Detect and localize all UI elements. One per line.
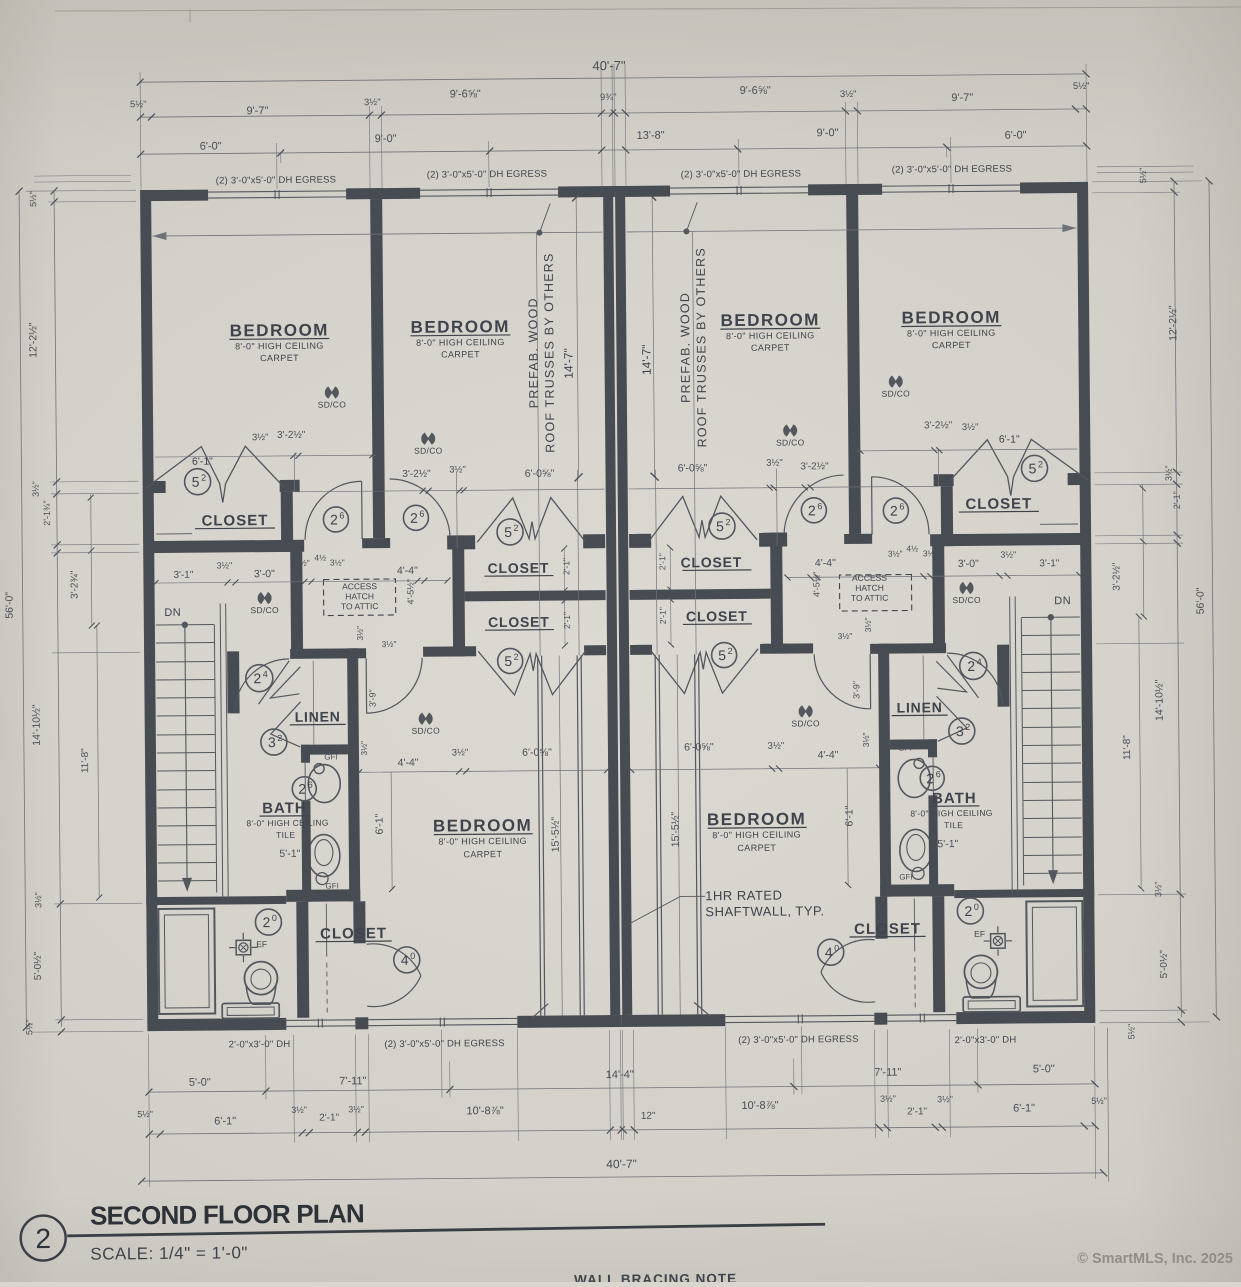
svg-text:BEDROOM: BEDROOM [901,308,1000,328]
svg-text:2: 2 [725,517,730,527]
svg-text:2'-1": 2'-1" [562,612,572,629]
svg-text:5: 5 [504,524,512,540]
svg-text:BATH: BATH [932,790,977,807]
svg-text:(2) 3'-0"x5'-0" DH EGRESS: (2) 3'-0"x5'-0" DH EGRESS [216,174,337,186]
svg-text:6'-1": 6'-1" [192,456,213,468]
svg-text:3½": 3½" [861,732,871,747]
svg-text:9'-6⅝": 9'-6⅝" [740,85,771,97]
svg-text:GFI: GFI [324,752,337,761]
svg-text:6'-0⅝": 6'-0⅝" [684,741,714,753]
svg-text:CLOSET: CLOSET [201,512,268,530]
svg-text:6: 6 [817,501,822,511]
svg-text:10'-8⅞": 10'-8⅞" [741,1100,778,1112]
svg-text:CLOSET: CLOSET [854,920,921,938]
svg-text:2: 2 [35,1223,51,1254]
svg-text:CARPET: CARPET [932,340,971,350]
svg-text:2: 2 [201,473,206,483]
svg-text:2'-1": 2'-1" [319,1112,339,1123]
svg-text:14'-4": 14'-4" [606,1069,634,1081]
svg-text:3½": 3½" [962,422,979,433]
svg-text:3½": 3½" [838,631,853,641]
svg-text:ROOF TRUSSES BY OTHERS: ROOF TRUSSES BY OTHERS [542,252,558,452]
svg-text:0: 0 [272,913,277,923]
svg-text:2: 2 [808,502,816,518]
svg-text:9¾": 9¾" [600,92,617,103]
svg-text:11'-8": 11'-8" [80,748,91,773]
svg-text:5'-1": 5'-1" [937,838,958,850]
svg-text:2: 2 [964,903,972,919]
svg-text:2'-0"x3'-0" DH: 2'-0"x3'-0" DH [229,1039,291,1051]
svg-text:2: 2 [330,511,338,527]
svg-text:4'-5½": 4'-5½" [811,572,821,598]
svg-text:TILE: TILE [944,820,963,830]
svg-text:TILE: TILE [276,830,295,840]
svg-text:15'-5½": 15'-5½" [669,811,681,847]
svg-text:6'-1": 6'-1" [1013,1102,1035,1114]
svg-text:2'-1": 2'-1" [657,553,667,570]
svg-text:© SmartMLS, Inc. 2025: © SmartMLS, Inc. 2025 [1077,1251,1233,1267]
svg-text:3½": 3½" [291,1105,307,1115]
svg-text:5'-0": 5'-0" [1033,1063,1055,1075]
svg-text:6'-0⅝": 6'-0⅝" [522,747,552,759]
svg-text:9'-7": 9'-7" [951,92,973,104]
svg-text:BEDROOM: BEDROOM [411,317,510,337]
svg-text:LINEN: LINEN [897,699,943,715]
svg-text:5½": 5½" [1126,1024,1136,1040]
svg-text:8'-0" HIGH CEILING: 8'-0" HIGH CEILING [416,337,505,348]
svg-text:14'-10½": 14'-10½" [31,704,43,746]
svg-text:SCALE: 1/4" = 1'-0": SCALE: 1/4" = 1'-0" [90,1243,248,1263]
svg-text:6'-0": 6'-0" [200,140,222,152]
svg-text:BEDROOM: BEDROOM [720,310,819,330]
svg-text:8'-0" HIGH CEILING: 8'-0" HIGH CEILING [235,341,324,352]
svg-text:TO ATTIC: TO ATTIC [341,601,379,611]
svg-text:5½": 5½" [130,99,147,110]
svg-text:8'-0" HIGH CEILING: 8'-0" HIGH CEILING [910,808,992,819]
svg-text:SD/CO: SD/CO [250,605,279,615]
svg-text:(2) 3'-0"x5'-0" DH EGRESS: (2) 3'-0"x5'-0" DH EGRESS [681,168,802,180]
svg-text:CLOSET: CLOSET [965,495,1032,513]
svg-text:6'-1": 6'-1" [214,1115,236,1127]
svg-text:7'-11": 7'-11" [339,1075,366,1087]
svg-text:2: 2 [262,914,270,930]
svg-text:3½": 3½" [766,458,783,469]
svg-text:3½": 3½" [382,639,397,649]
svg-text:3'-2¾": 3'-2¾" [69,570,80,599]
svg-text:2: 2 [513,523,518,533]
svg-text:CARPET: CARPET [463,849,502,859]
svg-text:CLOSET: CLOSET [686,608,748,625]
svg-text:3'-2½": 3'-2½" [277,430,306,441]
svg-text:5½": 5½" [1091,1096,1107,1106]
svg-text:3: 3 [956,723,964,739]
svg-text:5: 5 [716,518,724,534]
svg-text:TO ATTIC: TO ATTIC [851,593,889,603]
svg-text:ROOF TRUSSES BY OTHERS: ROOF TRUSSES BY OTHERS [694,247,710,447]
svg-text:5½": 5½" [137,1109,153,1119]
svg-text:4: 4 [825,944,833,960]
svg-text:12'-2½": 12'-2½" [1167,305,1179,341]
svg-text:WALL BRACING NOTE: WALL BRACING NOTE [574,1271,737,1282]
svg-text:SD/CO: SD/CO [776,437,805,447]
svg-text:5'-1": 5'-1" [279,848,300,860]
svg-text:EF: EF [256,939,267,949]
svg-text:8'-0" HIGH CEILING: 8'-0" HIGH CEILING [246,818,328,829]
svg-text:6'-1": 6'-1" [999,434,1020,446]
svg-text:4'-4": 4'-4" [397,565,418,577]
svg-text:3½": 3½" [880,1094,896,1104]
svg-text:6'-0⅝": 6'-0⅝" [678,462,708,474]
svg-text:SD/CO: SD/CO [414,446,443,456]
svg-text:5'-0½": 5'-0½" [1159,950,1170,979]
svg-text:(2) 3'-0"x5'-0" DH EGRESS: (2) 3'-0"x5'-0" DH EGRESS [738,1034,859,1046]
svg-text:9'-0": 9'-0" [375,133,397,145]
svg-text:12'-2½": 12'-2½" [27,322,39,358]
svg-text:2: 2 [277,733,282,743]
svg-text:6: 6 [339,510,344,520]
svg-text:3'-9": 3'-9" [367,689,377,707]
svg-text:2'-1": 2'-1" [561,558,571,575]
svg-text:3½": 3½" [330,557,345,567]
svg-text:3'-2½": 3'-2½" [924,420,953,431]
svg-text:8'-0" HIGH CEILING: 8'-0" HIGH CEILING [712,829,801,840]
svg-text:3'-0": 3'-0" [958,558,979,570]
svg-text:3½": 3½" [1153,881,1163,897]
svg-text:7'-11": 7'-11" [874,1067,901,1079]
svg-text:2: 2 [1038,459,1043,469]
svg-text:HATCH: HATCH [345,591,374,601]
svg-text:9'-0": 9'-0" [817,127,839,139]
svg-text:4: 4 [263,669,268,679]
svg-text:3½": 3½" [252,432,269,443]
svg-text:4½: 4½ [314,553,326,563]
svg-text:BEDROOM: BEDROOM [707,809,806,829]
svg-text:6'-1": 6'-1" [843,805,855,826]
svg-text:BEDROOM: BEDROOM [230,321,329,341]
svg-text:4½: 4½ [906,543,918,553]
svg-text:15'-5½": 15'-5½" [550,816,562,852]
svg-text:2'-1": 2'-1" [907,1106,927,1117]
svg-text:GFI: GFI [899,872,912,881]
svg-text:3'-2½": 3'-2½" [800,461,829,472]
svg-text:11'-8": 11'-8" [1122,735,1133,760]
svg-text:2: 2 [890,503,898,519]
svg-text:3½": 3½" [295,558,310,568]
svg-text:5'-0": 5'-0" [189,1077,211,1089]
svg-text:(2) 3'-0"x5'-0" DH EGRESS: (2) 3'-0"x5'-0" DH EGRESS [384,1038,505,1050]
svg-text:3'-0": 3'-0" [254,568,275,580]
svg-text:ACCESS: ACCESS [852,573,887,583]
svg-text:2'-0"x3'-0" DH: 2'-0"x3'-0" DH [955,1035,1017,1047]
svg-text:4: 4 [401,952,409,968]
svg-text:CARPET: CARPET [441,349,480,359]
svg-text:6'-0": 6'-0" [1005,129,1027,141]
svg-text:BATH: BATH [262,800,307,817]
svg-text:DN: DN [1054,595,1071,607]
svg-text:2: 2 [514,652,519,662]
svg-text:2: 2 [728,646,733,656]
svg-text:2: 2 [926,770,934,786]
svg-text:(2) 3'-0"x5'-0" DH EGRESS: (2) 3'-0"x5'-0" DH EGRESS [427,169,548,181]
svg-text:EF: EF [974,929,985,939]
svg-text:8'-0" HIGH CEILING: 8'-0" HIGH CEILING [907,328,996,339]
svg-text:0: 0 [834,943,839,953]
svg-text:3½": 3½" [449,464,466,475]
svg-text:5'-0½": 5'-0½" [33,951,44,980]
svg-text:5: 5 [1029,460,1037,476]
svg-text:2: 2 [410,510,418,526]
svg-text:3'-1": 3'-1" [173,570,193,581]
svg-text:CARPET: CARPET [260,353,299,363]
svg-text:3½": 3½" [888,549,903,559]
svg-text:LINEN: LINEN [295,708,341,724]
svg-text:BEDROOM: BEDROOM [433,816,532,836]
svg-text:9'-6⅝": 9'-6⅝" [450,88,481,100]
svg-text:0: 0 [974,902,979,912]
svg-text:5: 5 [718,647,726,663]
svg-text:HATCH: HATCH [855,583,884,593]
svg-text:SD/CO: SD/CO [791,718,820,728]
svg-text:14'-10½": 14'-10½" [1153,679,1165,721]
svg-text:3½": 3½" [359,741,369,756]
svg-text:0: 0 [410,951,415,961]
svg-text:2: 2 [298,781,306,797]
svg-text:SD/CO: SD/CO [318,399,347,409]
svg-text:SD/CO: SD/CO [882,388,911,398]
svg-text:CLOSET: CLOSET [320,925,387,943]
svg-text:4'-4": 4'-4" [398,757,419,769]
svg-text:5½": 5½" [24,1019,34,1035]
svg-text:CARPET: CARPET [737,843,776,853]
svg-text:2: 2 [965,722,970,732]
svg-text:5: 5 [504,653,512,669]
svg-text:3½": 3½" [840,89,857,100]
svg-text:6'-0⅝": 6'-0⅝" [525,468,555,480]
svg-text:3½": 3½" [937,1094,953,1104]
svg-text:3½": 3½" [216,560,232,570]
svg-text:6: 6 [936,769,941,779]
svg-text:5½": 5½" [1138,168,1148,184]
svg-text:40'-7": 40'-7" [606,1157,637,1171]
svg-text:3½": 3½" [1000,550,1016,560]
svg-text:3½": 3½" [452,747,469,758]
svg-text:3'-9": 3'-9" [851,681,861,699]
svg-text:13'-8": 13'-8" [637,130,665,142]
svg-text:14'-7": 14'-7" [561,348,575,379]
svg-text:3: 3 [268,734,276,750]
svg-text:10'-8⅞": 10'-8⅞" [466,1105,503,1117]
svg-text:4'-4": 4'-4" [818,749,839,761]
svg-text:2'-1": 2'-1" [658,607,668,624]
svg-text:GFI: GFI [898,743,911,752]
svg-text:3'-2½": 3'-2½" [1111,562,1122,591]
svg-text:4'-5½": 4'-5½" [405,579,415,605]
svg-text:56'-0": 56'-0" [1195,587,1207,614]
svg-text:6: 6 [308,780,313,790]
svg-text:4'-4": 4'-4" [815,557,836,569]
svg-text:2'-1": 2'-1" [1172,491,1182,509]
svg-text:SECOND FLOOR PLAN: SECOND FLOOR PLAN [90,1198,364,1230]
svg-text:CLOSET: CLOSET [680,554,742,571]
svg-text:3½": 3½" [364,97,381,108]
svg-text:SD/CO: SD/CO [412,726,441,736]
svg-text:(2) 3'-0"x5'-0" DH EGRESS: (2) 3'-0"x5'-0" DH EGRESS [892,164,1013,176]
svg-text:14'-7": 14'-7" [639,344,653,375]
svg-text:5: 5 [192,474,200,490]
svg-text:2'-1¾": 2'-1¾" [42,500,52,526]
svg-text:3'-1": 3'-1" [1039,558,1059,569]
svg-text:5½": 5½" [28,191,38,207]
svg-text:3½": 3½" [33,892,43,908]
svg-text:6: 6 [419,509,424,519]
svg-text:9'-7": 9'-7" [246,105,268,117]
svg-text:3½": 3½" [768,741,785,752]
svg-text:40'-7": 40'-7" [592,58,626,73]
svg-text:6'-1": 6'-1" [374,813,386,834]
svg-text:12": 12" [641,1111,656,1122]
svg-text:1HR RATED: 1HR RATED [705,888,782,904]
svg-text:PREFAB. WOOD: PREFAB. WOOD [678,292,693,403]
svg-text:5½": 5½" [1073,81,1090,92]
svg-text:3½": 3½" [923,548,938,558]
svg-text:PREFAB. WOOD: PREFAB. WOOD [526,297,541,408]
svg-text:6: 6 [899,502,904,512]
svg-text:8'-0" HIGH CEILING: 8'-0" HIGH CEILING [438,836,527,847]
svg-text:CLOSET: CLOSET [488,614,550,631]
svg-text:CARPET: CARPET [751,343,790,353]
svg-text:DN: DN [164,607,181,619]
svg-text:4: 4 [977,657,982,667]
svg-text:3½": 3½" [31,481,41,497]
svg-text:8'-0" HIGH CEILING: 8'-0" HIGH CEILING [726,330,815,341]
svg-text:56'-0": 56'-0" [4,592,16,619]
svg-text:GFI: GFI [325,881,338,890]
svg-text:2: 2 [967,658,975,674]
svg-text:ACCESS: ACCESS [342,581,377,591]
svg-text:3½": 3½" [863,617,873,632]
svg-text:SHAFTWALL, TYP.: SHAFTWALL, TYP. [705,903,824,919]
svg-text:3½": 3½" [355,626,365,641]
svg-text:3'-2½": 3'-2½" [402,469,431,480]
svg-text:3½": 3½" [1163,465,1173,481]
svg-text:2: 2 [253,670,261,686]
svg-text:3½": 3½" [348,1104,364,1114]
svg-text:CLOSET: CLOSET [488,560,550,577]
svg-text:SD/CO: SD/CO [952,595,981,605]
